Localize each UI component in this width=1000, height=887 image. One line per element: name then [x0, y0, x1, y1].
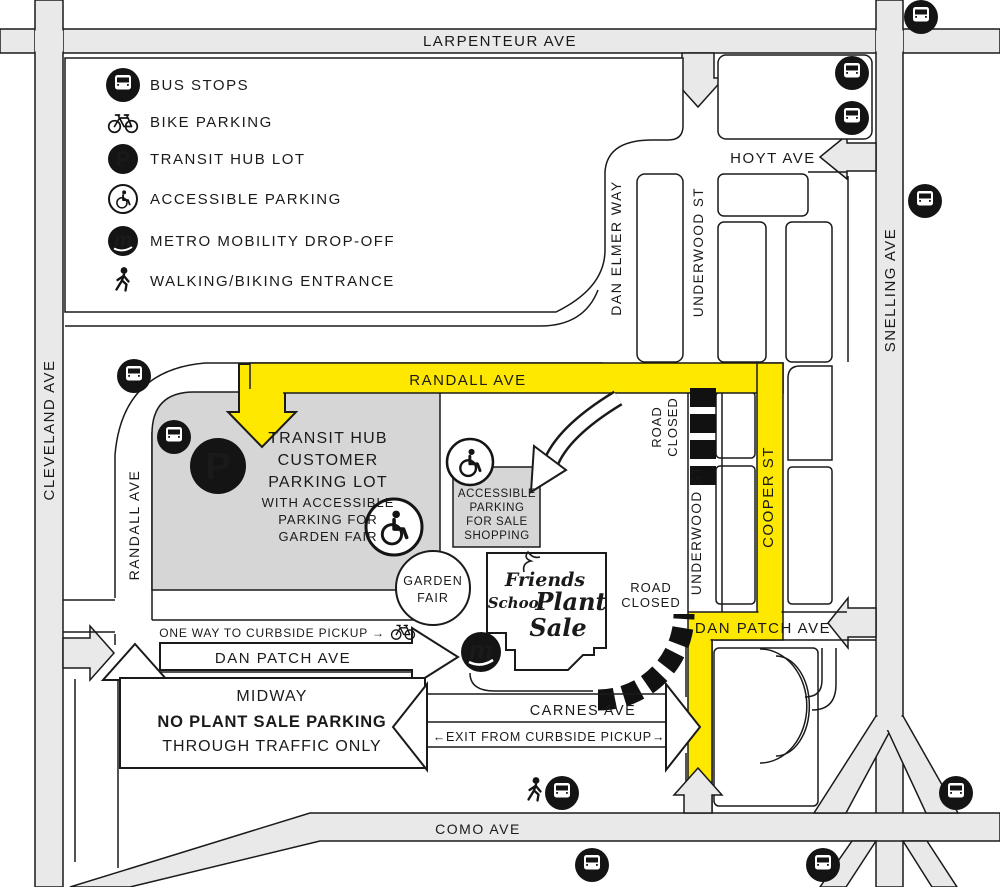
- label-carnes: CARNES AVE: [530, 703, 637, 719]
- label-randall-v: RANDALL AVE: [126, 470, 142, 581]
- garden-fair-circle: GARDEN FAIR: [396, 551, 470, 625]
- arrow-cleveland-to-dan-patch: [63, 626, 114, 680]
- garden-fair-line1: GARDEN: [403, 574, 462, 588]
- road-closed-2b: CLOSED: [621, 595, 680, 610]
- transit-hub-sub3: GARDEN FAIR: [278, 529, 377, 544]
- label-larpenteur: LARPENTEUR AVE: [423, 33, 577, 50]
- transit-hub-parking-lot: [152, 392, 440, 590]
- transit-hub-title2: CUSTOMER: [278, 452, 379, 469]
- label-snelling: SNELLING AVE: [882, 228, 899, 352]
- block-n2: [718, 174, 808, 216]
- arrow-up-randall: [103, 644, 167, 680]
- legend-label: BUS STOPS: [150, 77, 249, 94]
- block-m3: [788, 366, 832, 460]
- svg-text:P: P: [116, 148, 130, 171]
- label-cooper: COOPER ST: [760, 446, 777, 548]
- transit-hub-title3: PARKING LOT: [268, 474, 388, 491]
- svg-text:P: P: [205, 446, 230, 488]
- label-underwood-n: UNDERWOOD ST: [691, 187, 706, 317]
- road-closed-barricade-dan-patch: [598, 614, 684, 700]
- one-way-note: ONE WAY TO CURBSIDE PICKUP →: [159, 626, 385, 640]
- block-n3: [718, 222, 766, 362]
- bus-icon: [904, 0, 938, 34]
- accessible-parking-icon: [447, 439, 493, 485]
- label-cleveland: CLEVELAND AVE: [41, 360, 58, 501]
- arrow-randall-to-accessible: [531, 398, 618, 492]
- block-n1: [637, 174, 683, 362]
- carnes-road: [393, 684, 700, 770]
- bus-icon: [806, 848, 840, 882]
- block-s1: [714, 648, 818, 806]
- accessible-lot-line1: ACCESSIBLE: [458, 488, 536, 500]
- bus-icon: [106, 68, 140, 102]
- road-closed-2a: ROAD: [630, 580, 672, 595]
- route-patch-2: [759, 364, 782, 394]
- transit-hub-sub1: WITH ACCESSIBLE: [262, 495, 395, 510]
- midway-line1: MIDWAY: [236, 688, 307, 705]
- walking-biking-entrance-icon: [529, 777, 541, 800]
- accessible-lot-line4: SHOPPING: [464, 530, 530, 542]
- exit-note: ←EXIT FROM CURBSIDE PICKUP→: [433, 730, 666, 744]
- garden-fair-line2: FAIR: [417, 591, 449, 605]
- accessible-lot-line2: PARKING: [469, 502, 524, 514]
- bus-icon: [575, 848, 609, 882]
- block-m4: [788, 467, 832, 604]
- road-closed-1b: CLOSED: [665, 397, 680, 456]
- bus-icon: [157, 420, 191, 454]
- midway-line3: THROUGH TRAFFIC ONLY: [162, 738, 381, 755]
- label-dan-patch-w: DAN PATCH AVE: [215, 650, 351, 667]
- accessible-parking-icon: [109, 185, 137, 213]
- transit-hub-lot-icon: P: [190, 438, 246, 494]
- label-underwood-s: UNDERWOOD ST: [689, 465, 704, 595]
- label-dan-elmer: DAN ELMER WAY: [608, 180, 624, 315]
- randall-stem-lower: [75, 679, 118, 868]
- road-closed-1a: ROAD: [649, 406, 664, 448]
- metro-mobility-dropoff-icon: [461, 632, 501, 672]
- bus-icon: [117, 359, 151, 393]
- bus-icon: [545, 776, 579, 810]
- logo-plant: Plant: [534, 587, 606, 616]
- transit-hub-sub2: PARKING FOR: [278, 512, 378, 527]
- snelling-ramp-br: [903, 841, 957, 887]
- pickup-lane-curve: [470, 673, 593, 691]
- transit-hub-parking-icon: P: [108, 144, 138, 174]
- bus-icon: [908, 184, 942, 218]
- legend-label: METRO MOBILITY DROP-OFF: [150, 233, 395, 250]
- legend-label: ACCESSIBLE PARKING: [150, 191, 342, 208]
- bus-icon: [835, 101, 869, 135]
- label-dan-patch-e: DAN PATCH AVE: [695, 620, 831, 637]
- west-stub-edges: [63, 600, 115, 632]
- legend-label: WALKING/BIKING ENTRANCE: [150, 273, 395, 290]
- legend-label: BIKE PARKING: [150, 114, 273, 131]
- plant-sale-parking-map: m: [0, 0, 1000, 887]
- label-como: COMO AVE: [435, 821, 521, 837]
- bus-icon: [835, 56, 869, 90]
- bus-icon: [939, 776, 973, 810]
- label-randall-h: RANDALL AVE: [409, 372, 526, 389]
- accessible-lot-line3: FOR SALE: [466, 516, 528, 528]
- route-patch-1: [241, 389, 283, 395]
- transit-hub-title1: TRANSIT HUB: [268, 430, 388, 447]
- legend-label: TRANSIT HUB LOT: [150, 151, 306, 168]
- label-hoyt: HOYT AVE: [730, 150, 816, 167]
- midway-line2: NO PLANT SALE PARKING: [157, 713, 386, 731]
- logo-sale: Sale: [529, 613, 586, 642]
- metro-mobility-icon: [108, 226, 138, 256]
- block-n4: [786, 222, 832, 362]
